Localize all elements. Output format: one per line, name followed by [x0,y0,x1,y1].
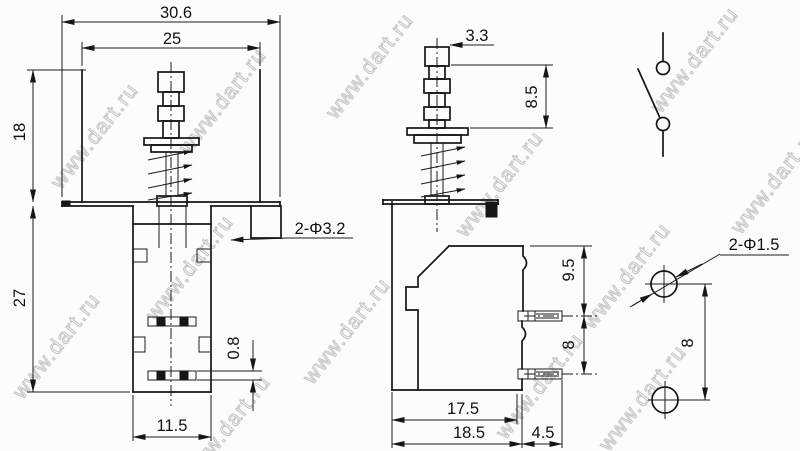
bracket-ear-edge [62,201,70,206]
watermark-text: www.dart.ru [174,44,271,159]
label-hole-diameter: 2-Φ1.5 [729,236,780,254]
dim-front-frame-width: 25 [163,30,181,48]
dim-side-body-depth: 17.5 [447,400,479,418]
circuit-contact [657,118,670,131]
dim-front-body-height: 27 [11,289,29,307]
watermark-text: www.dart.ru [578,219,675,334]
watermark-text: www.dart.ru [726,124,800,239]
watermark-text: www.dart.ru [321,9,418,124]
terminal-slot-row [148,371,196,380]
dim-side-plunger-height: 8.5 [523,86,541,109]
watermark-layer: www.dart.ru www.dart.ru www.dart.ru www.… [8,3,800,451]
dim-front-frame-height: 18 [11,123,29,141]
label-front-mounting-holes: 2-Φ3.2 [295,220,346,238]
side-dimensions: 3.3 8.5 9.5 8 17.5 18.5 4.5 [392,27,592,448]
watermark-text: www.dart.ru [298,274,395,389]
dim-side-overall-depth: 18.5 [453,424,485,442]
dim-hole-pitch: 8 [679,338,697,347]
watermark-text: www.dart.ru [46,79,143,194]
watermark-text: www.dart.ru [646,3,743,118]
body-right-upper [523,246,527,311]
watermark-text: www.dart.ru [451,127,548,242]
drawing-canvas: www.dart.ru www.dart.ru www.dart.ru www.… [0,0,800,451]
body-left-profile [406,246,449,390]
technical-drawing-page: www.dart.ru www.dart.ru www.dart.ru www.… [0,0,800,451]
dim-side-plunger-width: 3.3 [466,27,489,45]
dim-side-terminal-length: 4.5 [532,424,555,442]
body-notch [133,249,147,262]
dim-side-terminal-pitch: 8 [560,340,578,349]
dim-front-overall-width: 30.6 [160,4,192,22]
body-notch [133,337,145,352]
watermark-text: www.dart.ru [141,211,238,326]
spring-front [148,151,192,200]
side-view: 3.3 8.5 9.5 8 17.5 18.5 4.5 [383,27,598,448]
body-notch [199,337,211,352]
dim-side-top-to-terminal: 9.5 [560,259,578,282]
bracket-mounting-tab [251,206,281,238]
circuit-contact [657,62,670,75]
watermark-text: www.dart.ru [178,371,275,451]
body-right-mid [522,321,526,369]
bracket-ear-edge [486,202,497,217]
dim-front-terminal-thickness: 0.8 [225,337,243,360]
dim-front-body-width: 11.5 [157,417,188,435]
